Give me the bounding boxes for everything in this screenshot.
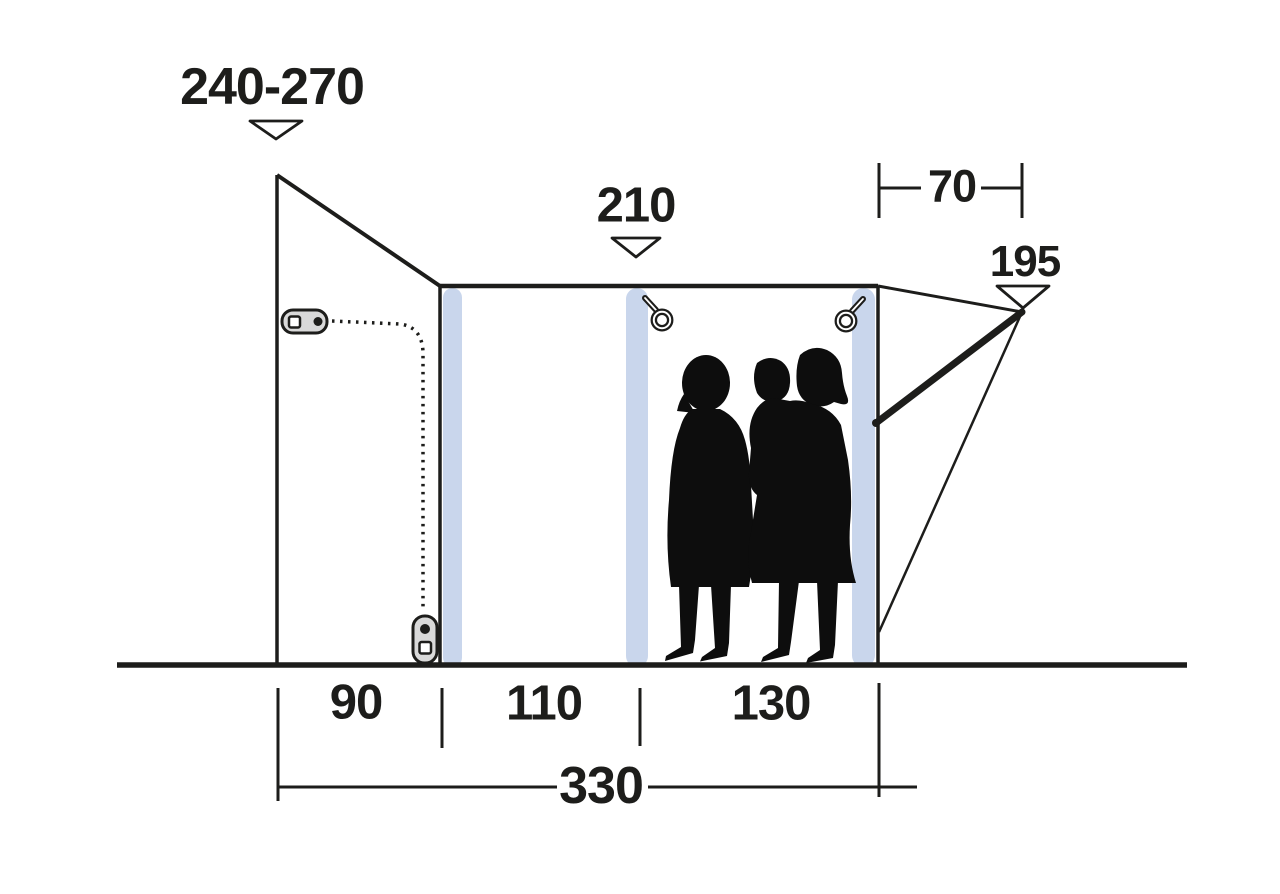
- zipper-pull-bottom-icon: [413, 616, 437, 663]
- air-beam-icon: [626, 288, 648, 667]
- brace-pole: [872, 309, 1025, 427]
- front-width-label: 130: [732, 680, 811, 729]
- guy-line: [879, 312, 1022, 632]
- air-beam-icon: [443, 288, 462, 667]
- people-silhouette: [665, 348, 856, 663]
- peak-height-label: 240-270: [180, 61, 364, 113]
- dimension-diagram: 240-270 210 70 195 90 110 130 330: [0, 0, 1280, 894]
- zipper-track: [332, 321, 423, 610]
- pole-height-label: 195: [990, 240, 1060, 284]
- triangle-down-marker: [997, 286, 1049, 308]
- total-width-label: 330: [559, 760, 643, 812]
- ring-pull-left-icon: [645, 298, 670, 328]
- air-beam-icon: [852, 288, 875, 667]
- overhang-depth-label: 70: [928, 164, 976, 209]
- zipper-pull-top-icon: [282, 310, 327, 333]
- rear-width-label: 90: [330, 679, 383, 728]
- triangle-down-marker: [250, 121, 302, 139]
- wall-height-label: 210: [597, 182, 676, 231]
- mid-width-label: 110: [506, 680, 582, 729]
- triangle-down-marker: [612, 238, 660, 257]
- tent-outline: [277, 175, 1022, 665]
